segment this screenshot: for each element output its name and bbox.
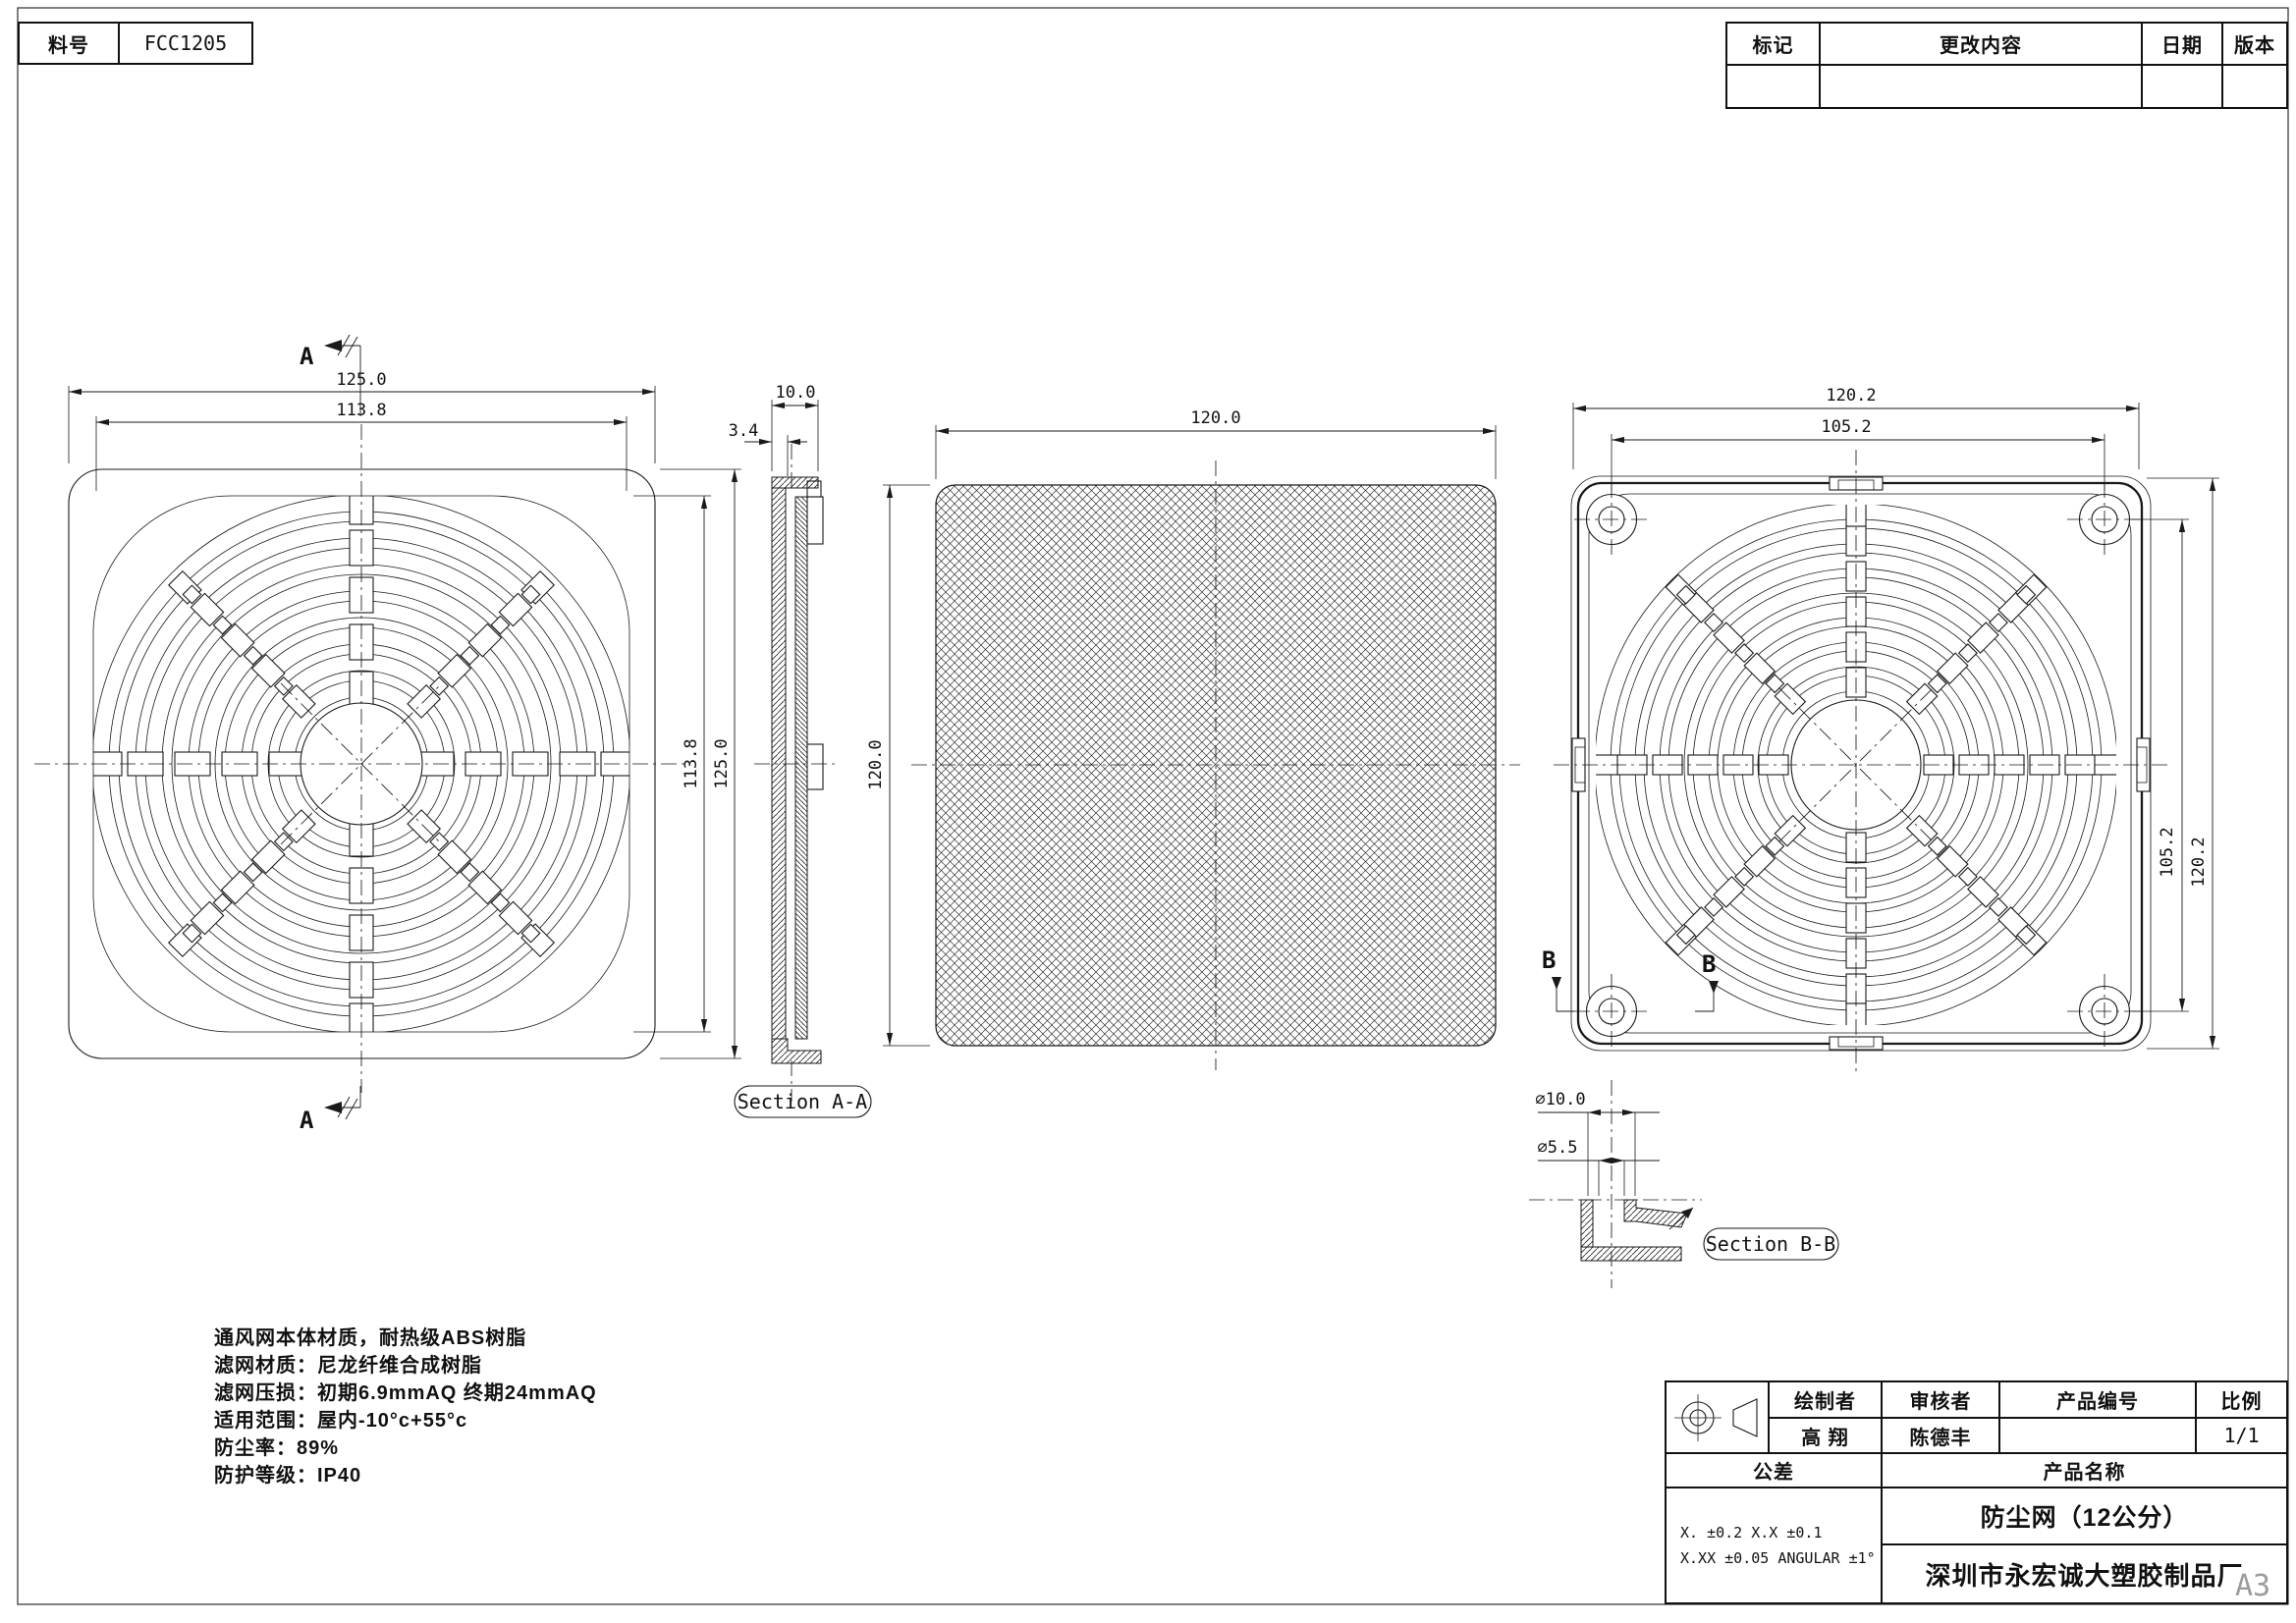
dim-section-b-inner: ⌀5.5	[1538, 1138, 1578, 1158]
dim-section-b-outer: ⌀10.0	[1535, 1090, 1585, 1109]
product-no-value	[1999, 1418, 2196, 1453]
dim-back-inner-width: 105.2	[1821, 417, 1871, 437]
dim-back-inner-height: 105.2	[2158, 827, 2177, 877]
section-marker-b-left: B	[1542, 947, 1556, 974]
part-number-value: FCC1205	[119, 23, 252, 64]
section-marker-a-bottom: A	[300, 1107, 314, 1134]
dim-mesh-height: 120.0	[866, 739, 886, 789]
dim-front-width: 125.0	[336, 370, 386, 390]
product-no-label: 产品编号	[1999, 1381, 2196, 1418]
revision-col-content: 更改内容	[1820, 23, 2142, 65]
mesh-view: 120.0 120.0	[866, 408, 1520, 1070]
front-view-dimensions: 125.0 113.8 113.8 125.0	[69, 370, 741, 1058]
tolerance-line-1: X. ±0.2 X.X ±0.1	[1667, 1520, 1881, 1545]
note-line: 适用范围：屋内-10°c+55°c	[214, 1407, 597, 1434]
revision-empty-cell	[1820, 65, 2142, 108]
projection-symbol	[1668, 1385, 1767, 1450]
tolerance-cell: X. ±0.2 X.X ±0.1 X.XX ±0.05 ANGULAR ±1°	[1666, 1488, 1882, 1603]
section-marker-a-top: A	[300, 343, 314, 370]
spec-notes: 通风网本体材质，耐热级ABS树脂 滤网材质：尼龙纤维合成树脂 滤网压损：初期6.…	[214, 1325, 597, 1489]
title-block: 绘制者 审核者 产品编号 比例 高 翔 陈德丰 1/1 公差 产品名称 X. ±…	[1665, 1380, 2288, 1604]
note-line: 通风网本体材质，耐热级ABS树脂	[214, 1325, 597, 1352]
dim-section-a-frame: 3.4	[729, 421, 759, 441]
drafter-value: 高 翔	[1769, 1418, 1882, 1453]
product-name-value: 防尘网（12公分）	[1882, 1488, 2287, 1544]
revision-col-date: 日期	[2142, 23, 2222, 65]
dim-front-inner-height: 113.8	[682, 738, 701, 788]
reviewer-label: 审核者	[1882, 1381, 1999, 1418]
dim-back-height: 120.2	[2189, 837, 2209, 887]
section-b-view: ⌀10.0 ⌀5.5 Section B-B	[1529, 1080, 1838, 1288]
projection-symbol-cell	[1666, 1381, 1769, 1453]
note-line: 防尘率：89%	[214, 1434, 597, 1462]
sheet-size-label: A3	[2235, 1569, 2270, 1603]
scale-value: 1/1	[2196, 1418, 2287, 1453]
tolerance-line-2: X.XX ±0.05 ANGULAR ±1°	[1667, 1545, 1881, 1571]
note-line: 滤网压损：初期6.9mmAQ 终期24mmAQ	[214, 1380, 597, 1407]
revision-empty-cell	[2222, 65, 2287, 108]
part-number-table: 料号 FCC1205	[18, 22, 253, 65]
revision-col-mark: 标记	[1726, 23, 1820, 65]
section-marker-b-right: B	[1702, 950, 1716, 978]
section-a-view: 10.0 3.4 Section A-A	[729, 383, 871, 1117]
drafter-label: 绘制者	[1769, 1381, 1882, 1418]
back-view: B B	[1542, 450, 2168, 1072]
note-line: 防护等级：IP40	[214, 1462, 597, 1489]
section-b-label: Section B-B	[1706, 1232, 1835, 1256]
section-a-label: Section A-A	[738, 1090, 867, 1113]
revision-table: 标记 更改内容 日期 版本	[1725, 22, 2288, 109]
tolerance-label: 公差	[1666, 1453, 1882, 1488]
revision-col-version: 版本	[2222, 23, 2287, 65]
part-number-label: 料号	[19, 23, 119, 64]
note-line: 滤网材质：尼龙纤维合成树脂	[214, 1352, 597, 1380]
company-name: 深圳市永宏诚大塑胶制品厂	[1882, 1544, 2287, 1603]
scale-label: 比例	[2196, 1381, 2287, 1418]
dim-front-height: 125.0	[712, 738, 732, 788]
revision-empty-cell	[1726, 65, 1820, 108]
revision-empty-cell	[2142, 65, 2222, 108]
product-name-label: 产品名称	[1882, 1453, 2287, 1488]
dim-front-inner-width: 113.8	[336, 401, 386, 420]
drawing-sheet: A A 125.0 113.8 113.8 125.0	[0, 0, 2296, 1623]
dim-mesh-width: 120.0	[1190, 408, 1240, 428]
front-view	[34, 424, 689, 1093]
dim-back-width: 120.2	[1826, 386, 1876, 406]
reviewer-value: 陈德丰	[1882, 1418, 1999, 1453]
dim-section-a-total: 10.0	[776, 383, 816, 403]
